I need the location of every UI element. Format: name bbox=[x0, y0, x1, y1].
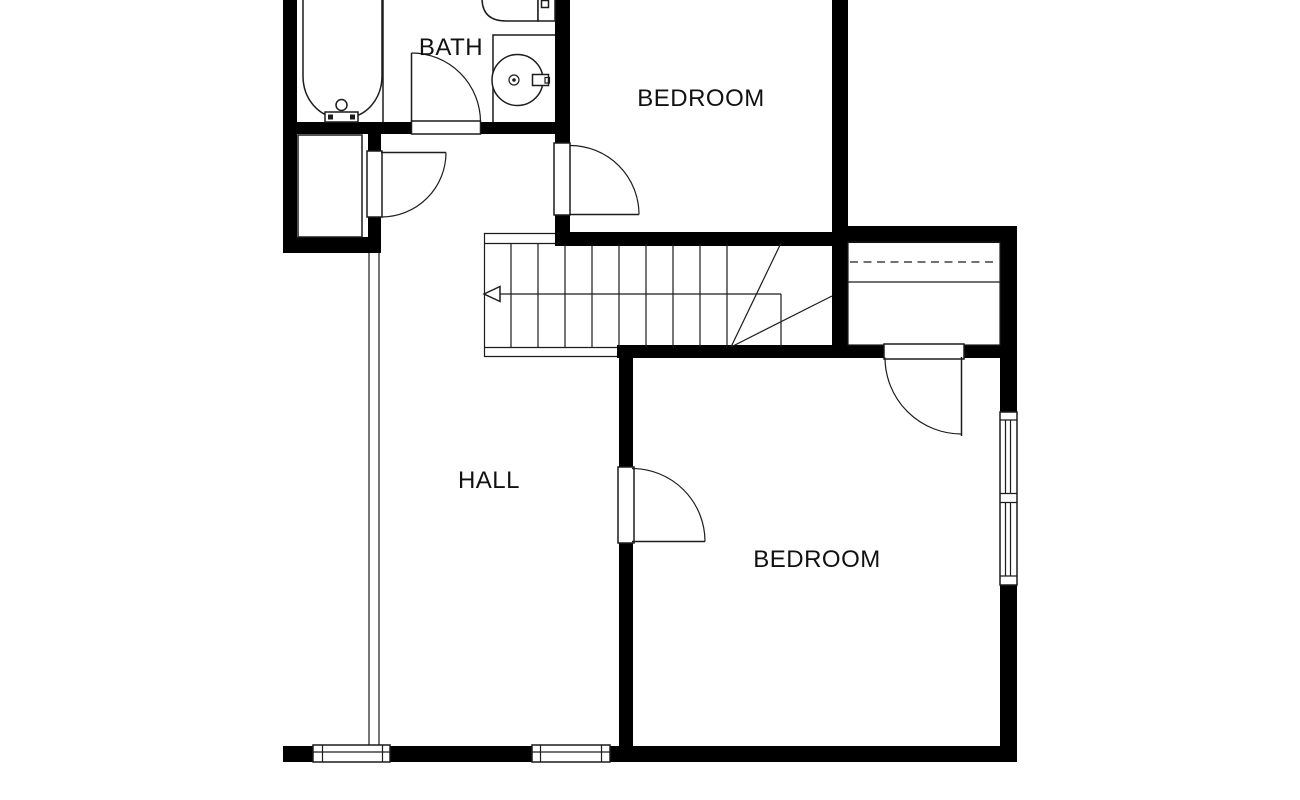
hall-closet-door-swing-arc bbox=[382, 153, 447, 218]
stair-direction-arrowhead bbox=[484, 287, 500, 302]
bathtub-faucet-dot-right bbox=[350, 115, 355, 120]
label-bedroom-top: BEDROOM bbox=[637, 85, 765, 112]
bedroom-top-door-threshold bbox=[554, 143, 570, 215]
wall-bath-bottom-left bbox=[283, 122, 412, 134]
wall-bedroom2-top-left bbox=[617, 345, 884, 358]
stair-tread-lines bbox=[511, 244, 727, 348]
bath-door bbox=[412, 53, 481, 134]
wall-bedroom2-left-lower bbox=[619, 542, 633, 762]
wall-hallcloset-bottom bbox=[283, 237, 380, 253]
toilet bbox=[482, 0, 555, 21]
bedroom-bottom-door bbox=[618, 467, 705, 543]
window-bottom-mid bbox=[532, 745, 610, 762]
bedroom-top-door-swing-arc bbox=[570, 146, 639, 215]
wall-closet-top bbox=[848, 226, 1017, 243]
stair-railing-lines bbox=[369, 253, 379, 746]
wall-bath-bedroom-upper bbox=[555, 0, 570, 143]
label-hall: HALL bbox=[458, 467, 520, 494]
wall-bottom-seg1 bbox=[283, 746, 313, 762]
bathtub-faucet-dot-left bbox=[328, 115, 333, 120]
wall-stair-top bbox=[555, 232, 848, 246]
wall-bedroom2-top-right bbox=[963, 345, 1017, 358]
label-bedroom-bottom: BEDROOM bbox=[753, 546, 881, 573]
floor-plan-drawing: BATH BEDROOM HALL BEDROOM bbox=[0, 0, 1300, 800]
window-bottom-left-frame bbox=[313, 745, 390, 762]
window-bottom-left bbox=[313, 745, 390, 762]
bath-door-threshold bbox=[412, 121, 481, 134]
bedroom-bottom-door-threshold bbox=[618, 467, 634, 543]
bedroom-bottom-door-swing-arc bbox=[632, 469, 705, 542]
window-bottom-mid-frame bbox=[532, 745, 610, 762]
hall-closet-interior bbox=[298, 135, 362, 237]
bathtub bbox=[303, 0, 382, 122]
bathtub-faucet-knob bbox=[336, 100, 347, 111]
sink-drain-dot bbox=[512, 78, 516, 82]
wall-bedroom2-left-upper bbox=[619, 345, 633, 468]
stair-enclosure-lines bbox=[484, 233, 617, 357]
bath-door-swing-arc bbox=[412, 53, 481, 122]
hall-closet-door-threshold bbox=[367, 151, 382, 217]
wall-bottom-seg3 bbox=[610, 746, 1017, 762]
stair-winder-lines bbox=[731, 243, 832, 347]
sink-vanity bbox=[492, 35, 555, 122]
wall-hallcloset-right-top bbox=[368, 125, 381, 153]
wall-right-outer-lower bbox=[1000, 585, 1017, 762]
wall-bottom-seg2 bbox=[390, 746, 532, 762]
window-right-frame bbox=[1000, 412, 1017, 585]
label-bath: BATH bbox=[419, 34, 483, 61]
wall-bedroom-top-right bbox=[832, 0, 848, 347]
sink-faucet bbox=[533, 75, 549, 86]
bedroom-closet-door bbox=[884, 344, 964, 436]
bedroom-closet bbox=[848, 242, 1000, 345]
staircase bbox=[484, 233, 832, 357]
toilet-bowl bbox=[482, 0, 538, 21]
closet-interior-outline bbox=[848, 242, 1000, 345]
toilet-flush-button bbox=[542, 1, 549, 8]
window-right-wall bbox=[1000, 412, 1017, 585]
wall-right-outer-upper bbox=[1000, 226, 1017, 412]
walls bbox=[283, 0, 1017, 762]
bedroom-closet-door-threshold bbox=[884, 344, 964, 359]
bedroom-closet-door-swing-arc bbox=[885, 358, 962, 435]
hall-closet-door bbox=[367, 151, 446, 217]
floor-plan: BATH BEDROOM HALL BEDROOM bbox=[0, 0, 1300, 800]
bedroom-top-door bbox=[554, 143, 639, 215]
